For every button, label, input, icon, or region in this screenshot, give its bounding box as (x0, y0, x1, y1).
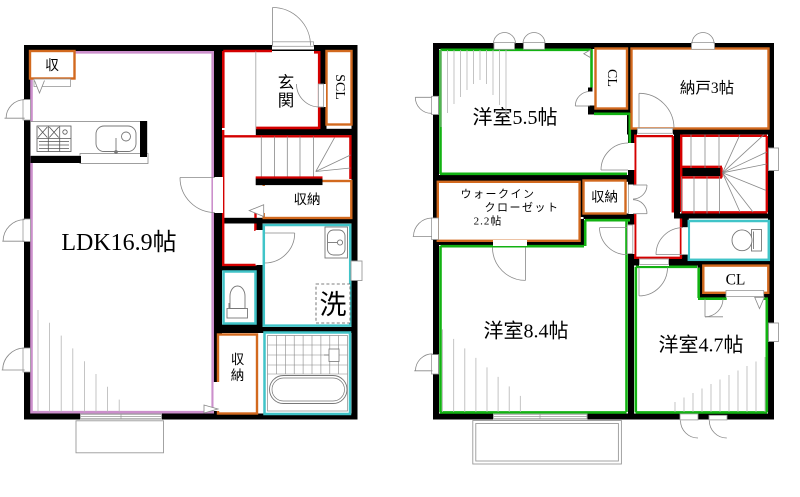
svg-text:CL: CL (604, 69, 619, 87)
svg-text:洋室5.5帖: 洋室5.5帖 (473, 106, 558, 129)
svg-text:玄: 玄 (278, 73, 295, 92)
svg-text:洋室8.4帖: 洋室8.4帖 (484, 320, 569, 343)
svg-text:収: 収 (45, 58, 59, 74)
svg-text:関: 関 (278, 91, 295, 110)
svg-text:洋室4.7帖: 洋室4.7帖 (659, 334, 744, 357)
svg-text:納戸3帖: 納戸3帖 (680, 79, 734, 97)
svg-text:納: 納 (231, 368, 245, 383)
svg-text:ウォークイン: ウォークイン (461, 188, 536, 201)
svg-text:SCL: SCL (332, 74, 347, 100)
svg-text:LDK16.9帖: LDK16.9帖 (61, 229, 176, 256)
svg-text:CL: CL (726, 272, 746, 289)
svg-text:2.2帖: 2.2帖 (474, 215, 503, 228)
svg-text:収納: 収納 (591, 190, 618, 205)
svg-text:収: 収 (231, 352, 245, 367)
svg-text:収納: 収納 (294, 192, 321, 207)
svg-text:クローゼット: クローゼット (485, 201, 560, 214)
svg-text:洗: 洗 (320, 290, 347, 320)
